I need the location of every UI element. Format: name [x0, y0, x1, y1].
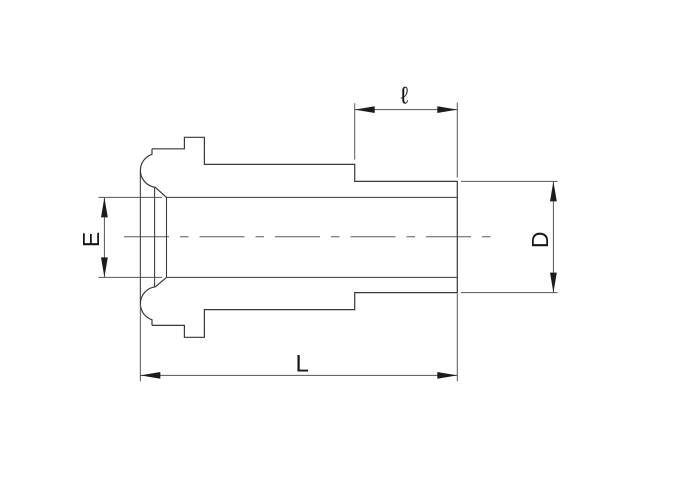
svg-text:E: E: [78, 232, 104, 247]
svg-text:D: D: [527, 231, 553, 248]
svg-text:L: L: [296, 351, 309, 378]
svg-text:ℓ: ℓ: [401, 83, 409, 110]
